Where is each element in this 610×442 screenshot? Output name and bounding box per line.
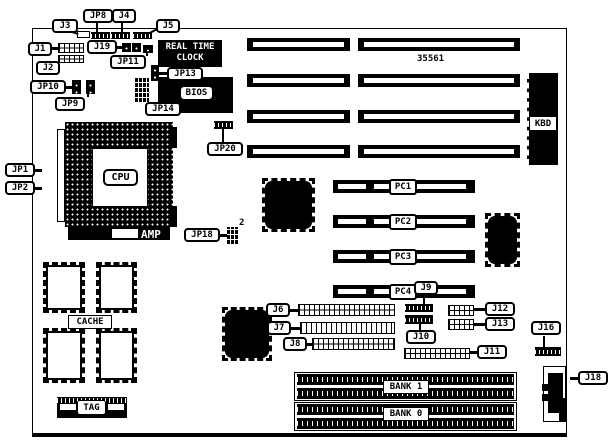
j16-pointer-line (543, 336, 545, 347)
cpu-socket-tab-top (171, 127, 177, 148)
j3-label: J3 (52, 19, 78, 33)
j18-din-tab-1 (542, 384, 548, 391)
j13-pointer-line (473, 323, 485, 326)
j13-header (448, 319, 474, 330)
j3-pad (77, 31, 90, 38)
pci3-label: PC3 (389, 249, 417, 265)
j12-header (448, 305, 474, 316)
pci4-label: PC4 (389, 284, 417, 300)
j19-pad-2 (132, 43, 141, 52)
bank0-label: BANK 0 (383, 407, 429, 421)
jp9-pointer-line (87, 93, 89, 97)
chipset-qfp-2 (485, 213, 520, 267)
board-part-number: 35561 (417, 54, 444, 64)
jp13-jumper (151, 65, 159, 81)
tag-chip-window-right (108, 404, 124, 410)
pci3-key-short (338, 254, 366, 259)
chipset-qfp-1-body (265, 181, 312, 229)
rtc-label-line2: CLOCK (158, 53, 222, 64)
pci3-key-long (374, 254, 466, 259)
j10-header (405, 315, 433, 324)
j19-label: J19 (87, 40, 117, 54)
jp2-pointer-line (34, 187, 42, 190)
jp13-label: JP13 (167, 67, 203, 81)
isa-slot-3-left (247, 110, 350, 123)
j11-pointer-line (469, 351, 477, 354)
jp18-label: JP18 (184, 228, 220, 242)
jp10-label: JP10 (30, 80, 66, 94)
jp2-label: JP2 (5, 181, 35, 195)
cache-chip-3-body (46, 331, 82, 380)
isa-slot-3-right (358, 110, 520, 123)
cache-chip-2 (96, 262, 137, 313)
pci1-label: PC1 (389, 179, 417, 195)
j18-din-tab-2 (542, 394, 548, 401)
jp8-pointer-line (96, 22, 98, 32)
j4-header (111, 32, 130, 39)
jp14-header (135, 77, 149, 102)
jp20-label: JP20 (207, 142, 243, 156)
pci2-key-short (338, 219, 366, 224)
j6-pointer-line (289, 309, 298, 312)
rtc-chip: REAL TIME CLOCK (158, 40, 222, 67)
io-controller-qfp (222, 307, 272, 361)
bios-label: BIOS (180, 86, 213, 100)
j11-header (404, 348, 470, 359)
io-controller-qfp-body (225, 310, 269, 358)
j7-pointer-line (290, 327, 300, 330)
tag-label: TAG (77, 400, 106, 415)
j19-pad-1 (122, 43, 131, 52)
chipset-qfp-1 (262, 178, 315, 232)
jp11-label: JP11 (110, 55, 146, 69)
j2-label: J2 (36, 61, 60, 75)
j16-header (535, 347, 561, 356)
j6-header (298, 304, 395, 316)
jp20-header (214, 121, 233, 129)
bank1-label: BANK 1 (383, 380, 429, 394)
jp14-label: JP14 (145, 102, 181, 116)
j12-label: J12 (485, 302, 515, 316)
j7-label: J7 (267, 321, 291, 335)
j12-pointer-line (473, 308, 485, 311)
j4-label: J4 (112, 9, 136, 23)
cache-chip-3 (43, 328, 85, 383)
cache-chip-4 (96, 328, 137, 383)
jp18-jumper (227, 227, 238, 244)
j8-label: J8 (283, 337, 307, 351)
j16-label: J16 (531, 321, 561, 335)
cpu-label: CPU (103, 169, 138, 186)
j1-pointer-line (51, 47, 58, 50)
j2-header (58, 55, 84, 63)
jp1-pointer-line (34, 169, 42, 172)
j10-label: J10 (406, 330, 436, 344)
j1-header (58, 43, 84, 53)
pci1-key-long (374, 184, 466, 189)
j11-label: J11 (477, 345, 507, 359)
pci2-key-long (374, 219, 466, 224)
isa-slot-1-left (247, 38, 350, 51)
cache-label: CACHE (68, 315, 112, 329)
cpu-socket-tab-bottom (171, 206, 177, 227)
amp-key (112, 229, 138, 238)
pci4-key-short (338, 289, 366, 294)
rtc-label-line1: REAL TIME (158, 42, 222, 53)
jp18-pointer-line (219, 234, 227, 237)
j6-label: J6 (266, 303, 290, 317)
j18-label: J18 (578, 371, 608, 385)
isa-slot-4-right (358, 145, 520, 158)
j9-pointer-line (423, 296, 425, 304)
j4-pointer-line (121, 22, 123, 32)
j8-header (312, 338, 395, 350)
jp8-label: JP8 (83, 9, 113, 23)
j7-header (300, 322, 395, 334)
cache-chip-1-body (46, 265, 82, 310)
jp20-pointer-line (222, 129, 224, 142)
cpu-socket-lever (57, 129, 65, 222)
jp11-pointer-line (146, 52, 148, 56)
pci1-key-short (338, 184, 366, 189)
chipset-qfp-2-body (488, 216, 517, 264)
jp9-label: JP9 (55, 97, 85, 111)
kbd-label: KBD (530, 117, 556, 130)
jp8-header (91, 32, 110, 39)
isa-slot-4-left (247, 145, 350, 158)
cache-chip-1 (43, 262, 85, 313)
j1-label: J1 (28, 42, 52, 56)
j18-din-shield (559, 398, 567, 422)
cache-chip-2-body (99, 265, 134, 310)
pci2-label: PC2 (389, 214, 417, 230)
j9-header (405, 304, 433, 312)
amp-label: AMP (141, 228, 161, 241)
isa-slot-2-right (358, 74, 520, 87)
motherboard-diagram: 35561 KBD REAL TIME CLOCK BIOS CPU AMP 2 (0, 0, 610, 442)
jp1-label: JP1 (5, 163, 35, 177)
cache-chip-4-body (99, 331, 134, 380)
jp18-pin2-label: 2 (239, 218, 244, 228)
jp9-jumper (86, 80, 95, 94)
isa-slot-2-left (247, 74, 350, 87)
tag-chip-window-left (60, 404, 76, 410)
jp11-pad (143, 45, 153, 53)
jp10-jumper (72, 80, 81, 94)
j5-label: J5 (156, 19, 180, 33)
isa-slot-1-right (358, 38, 520, 51)
j13-label: J13 (485, 317, 515, 331)
j9-label: J9 (414, 281, 438, 295)
